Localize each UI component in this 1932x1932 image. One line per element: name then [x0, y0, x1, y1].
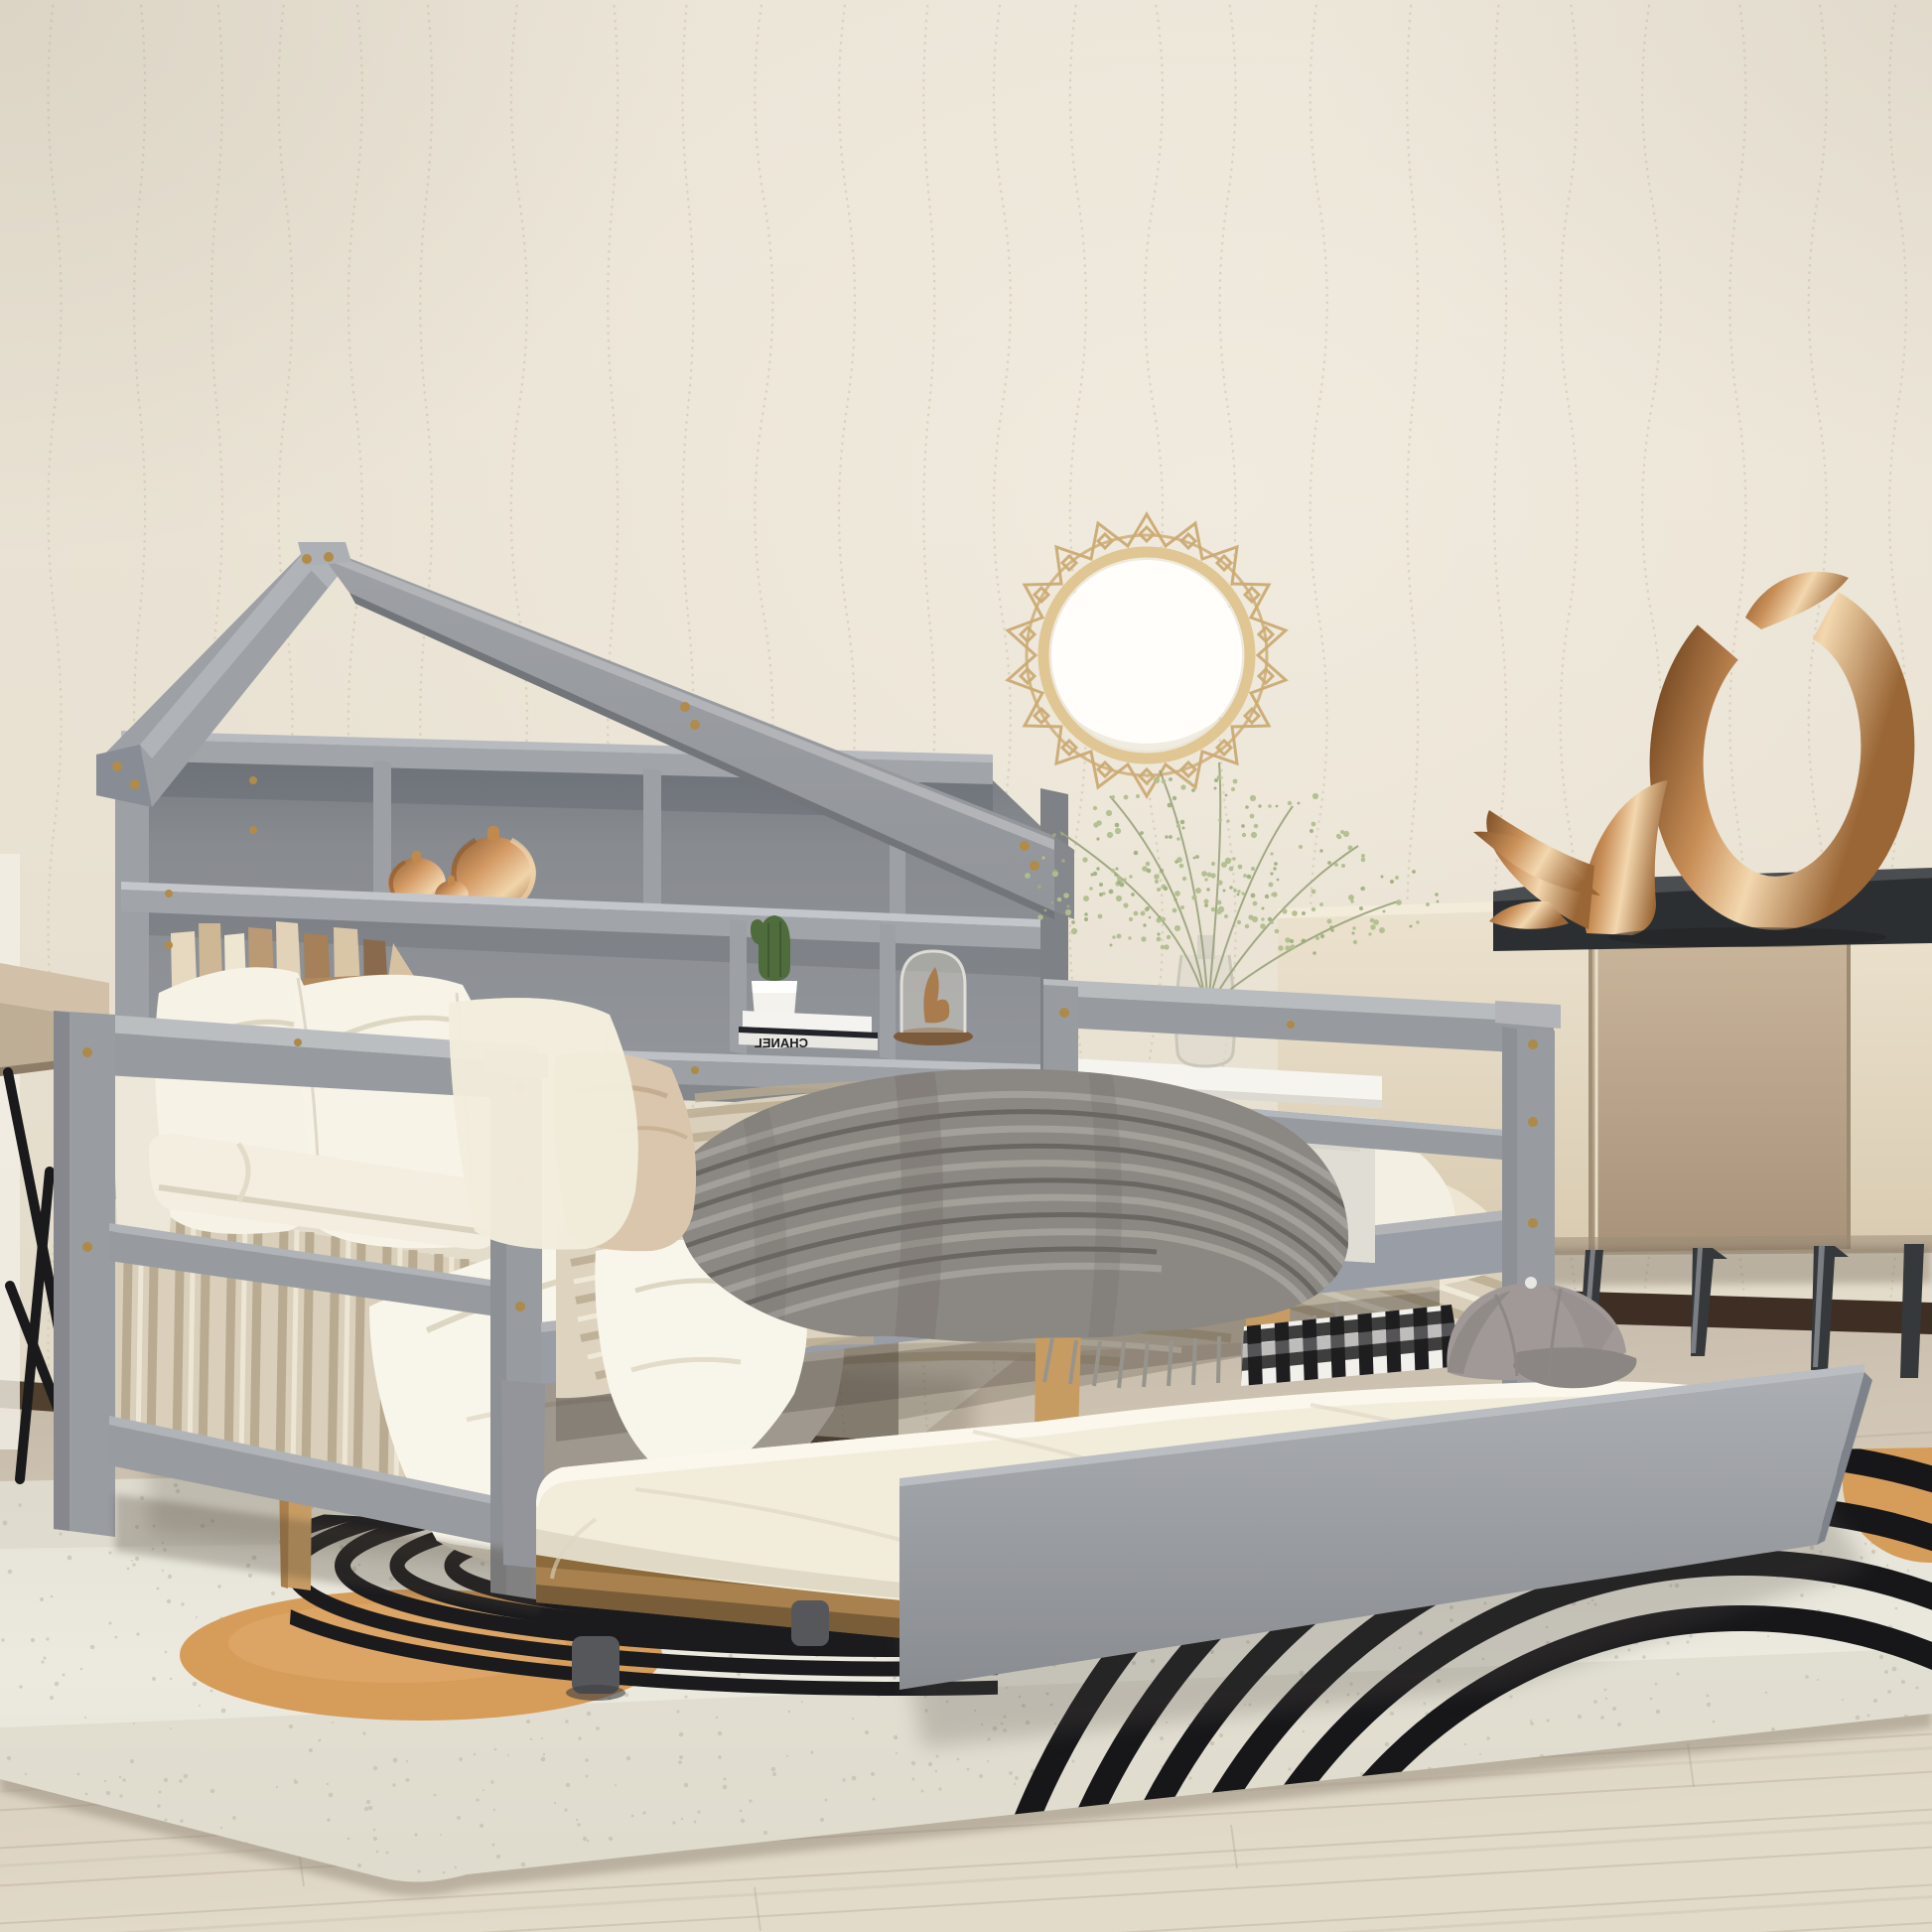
svg-text:CHANEL: CHANEL [755, 1035, 808, 1050]
